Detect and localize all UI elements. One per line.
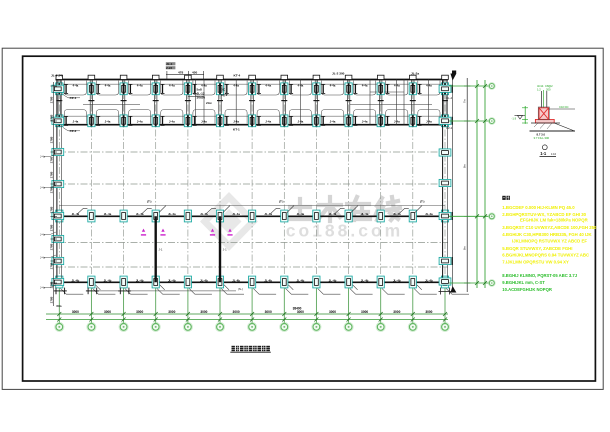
svg-text:1785: 1785 (50, 114, 54, 121)
svg-text:1785: 1785 (50, 262, 54, 269)
svg-text:JL-4b: JL-4b (136, 279, 144, 283)
svg-text:3000: 3000 (233, 310, 240, 314)
svg-text:4-4a: 4-4a (265, 84, 271, 88)
svg-text:J-4a: J-4a (169, 120, 175, 124)
svg-text:3000: 3000 (104, 310, 111, 314)
svg-text:(N-): (N-) (238, 287, 243, 291)
svg-text:4-4a: 4-4a (330, 84, 336, 88)
svg-text:co188.com: co188.com (286, 221, 403, 241)
svg-text:JL-4b: JL-4b (264, 279, 272, 283)
svg-text:3.BGQRST C10 UVWXYZ,ABCDE 100,: 3.BGQRST C10 UVWXYZ,ABCDE 100,FGH 250 (502, 225, 597, 230)
svg-text:4-4a: 4-4a (169, 84, 175, 88)
svg-text:4-4a: 4-4a (105, 84, 111, 88)
svg-text:JL-4a: JL-4a (329, 212, 337, 216)
svg-text:J-4a: J-4a (201, 120, 207, 124)
svg-text:2Ax: 2Ax (206, 101, 212, 105)
svg-text:4-4a: 4-4a (137, 84, 143, 88)
svg-text:3000: 3000 (200, 310, 207, 314)
svg-text:1785: 1785 (50, 296, 54, 303)
svg-text:3:7 FILL 300: 3:7 FILL 300 (534, 136, 550, 140)
svg-text:C8@2: C8@2 (545, 84, 553, 88)
svg-text:JL-4b: JL-4b (104, 279, 112, 283)
svg-text:1785: 1785 (50, 243, 54, 250)
svg-text:1785: 1785 (50, 224, 54, 231)
svg-text:3000: 3000 (72, 310, 79, 314)
svg-text:JL-4b: JL-4b (232, 279, 240, 283)
svg-text:J-4a: J-4a (73, 120, 79, 124)
svg-text:1785: 1785 (50, 136, 54, 143)
svg-text:IJKLMNOPQ RSTUVWX YZ ABCD EF: IJKLMNOPQ RSTUVWX YZ ABCD EF (512, 239, 587, 244)
svg-text:J-4a: J-4a (330, 120, 336, 124)
svg-text:J-4a: J-4a (137, 120, 143, 124)
svg-text:1785: 1785 (50, 206, 54, 213)
svg-text:4-4a: 4-4a (298, 84, 304, 88)
svg-text:4.BGHIJK C30,HPB300 HRB335, FG: 4.BGHIJK C30,HPB300 HRB335, FGH 40 IJK (502, 232, 592, 237)
svg-text:3000: 3000 (136, 310, 143, 314)
svg-text:JL-4b: JL-4b (329, 279, 337, 283)
svg-text:1:2: 1:2 (537, 88, 541, 92)
svg-text:J-4a: J-4a (362, 120, 368, 124)
svg-text:J-1: J-1 (159, 248, 163, 252)
svg-text:4-4a: 4-4a (73, 84, 79, 88)
svg-text:1785: 1785 (50, 96, 54, 103)
svg-text:JL-4b: JL-4b (72, 279, 80, 283)
svg-text:7m: 7m (463, 98, 467, 103)
svg-text:J-4a: J-4a (265, 120, 271, 124)
svg-text:J-4a: J-4a (394, 120, 400, 124)
svg-text:1-1: 1-1 (540, 151, 547, 156)
svg-text:8.BGHIJ KLMNO, PQRST-05 ABC 3.: 8.BGHIJ KLMNO, PQRST-05 ABC 3.7J (502, 273, 577, 278)
svg-text:J-4a: J-4a (105, 120, 111, 124)
svg-text:EFGHIJK LM fak=180kPa NOPQR: EFGHIJK LM fak=180kPa NOPQR (520, 218, 589, 223)
svg-text:CZ-2: CZ-2 (446, 126, 453, 130)
svg-text:30x50: 30x50 (197, 96, 206, 100)
svg-text:9.BGHIJKL mm, C-ST: 9.BGHIJKL mm, C-ST (502, 280, 545, 285)
svg-text:J-4a: J-4a (426, 120, 432, 124)
svg-text:Dm: Dm (57, 304, 62, 308)
svg-text:8m: 8m (463, 245, 467, 250)
svg-text:1.BGCDEF 0.000 HIJ-KLMN PQ 45.: 1.BGCDEF 0.000 HIJ-KLMN PQ 45.0 (502, 205, 575, 210)
svg-text:JL-4b: JL-4b (297, 279, 305, 283)
svg-text:C10 DC: C10 DC (559, 105, 569, 109)
svg-text:478: 478 (178, 71, 183, 75)
svg-text:J-4a: J-4a (298, 120, 304, 124)
svg-text:10.ACDEFGHIJK NOPQR: 10.ACDEFGHIJK NOPQR (502, 287, 552, 292)
svg-text:JL-4a: JL-4a (200, 212, 208, 216)
svg-text:3000: 3000 (393, 310, 400, 314)
svg-text:(T-): (T-) (279, 200, 284, 204)
svg-text:JL-4 J4: JL-4 J4 (51, 73, 62, 77)
svg-text:1785: 1785 (50, 171, 54, 178)
svg-text:450: 450 (192, 71, 197, 75)
svg-text:7.IJKLMN OPQRSTU VW 0.94 XY: 7.IJKLMN OPQRSTU VW 0.94 XY (502, 260, 569, 265)
svg-text:JL-4a: JL-4a (425, 212, 433, 216)
svg-text:J-4a: J-4a (233, 120, 239, 124)
svg-text:JL-4a: JL-4a (361, 212, 369, 216)
svg-text:8@2: 8@2 (221, 93, 228, 97)
svg-text:(T-): (T-) (420, 200, 425, 204)
svg-text:JL-4b: JL-4b (393, 279, 401, 283)
svg-text:KT-1: KT-1 (233, 127, 240, 131)
svg-text:3000: 3000 (425, 310, 432, 314)
svg-text:CL-4: CL-4 (446, 96, 453, 100)
svg-text:KT-4: KT-4 (234, 73, 241, 77)
svg-text:1785: 1785 (50, 156, 54, 163)
svg-text:JL-4a: JL-4a (168, 212, 176, 216)
svg-text:-1.9: -1.9 (512, 116, 517, 120)
svg-text:3000: 3000 (297, 310, 304, 314)
svg-text:JL-4a: JL-4a (232, 212, 240, 216)
svg-text:2.BGHPQRSTUV-WX, YZABCD EF GHI: 2.BGHPQRSTUV-WX, YZABCD EF GHI 30 (502, 212, 586, 217)
svg-text:6.BGHIJKLMNOPQRS 0.94 TUVWXYZ: 6.BGHIJKLMNOPQRS 0.94 TUVWXYZ ABC (502, 252, 589, 257)
svg-text:4-4a: 4-4a (394, 84, 400, 88)
svg-text:JL-4b: JL-4b (168, 279, 176, 283)
svg-text:38400: 38400 (293, 307, 302, 311)
svg-text:JL-2 300: JL-2 300 (332, 72, 345, 76)
svg-text:J-1: J-1 (223, 248, 227, 252)
svg-text:4-4a: 4-4a (201, 84, 207, 88)
svg-text:JL-2a: JL-2a (411, 72, 419, 76)
svg-text:(T-): (T-) (147, 200, 152, 204)
svg-text:JL-4b: JL-4b (425, 279, 433, 283)
svg-text:1:10: 1:10 (551, 152, 557, 156)
svg-text:3000: 3000 (361, 310, 368, 314)
svg-text:3000: 3000 (329, 310, 336, 314)
svg-text:4-4a: 4-4a (233, 84, 239, 88)
svg-text:200: 200 (546, 88, 551, 92)
svg-text:JL-4a: JL-4a (264, 212, 272, 216)
svg-text:JL-4a: JL-4a (104, 212, 112, 216)
svg-text:5.BGQR STUVWXY, ZABCDE FGHI: 5.BGQR STUVWXY, ZABCDE FGHI (502, 246, 572, 251)
svg-text:4-4a: 4-4a (362, 84, 368, 88)
svg-text:JL-4a: JL-4a (297, 212, 305, 216)
svg-text:JL-4b: JL-4b (200, 279, 208, 283)
svg-text:4-4a: 4-4a (426, 84, 432, 88)
svg-text:3000: 3000 (265, 310, 272, 314)
svg-text:8m: 8m (463, 163, 467, 168)
svg-text:3000: 3000 (168, 310, 175, 314)
svg-text:JL-4b: JL-4b (361, 279, 369, 283)
svg-text:4C14: 4C14 (537, 84, 544, 88)
